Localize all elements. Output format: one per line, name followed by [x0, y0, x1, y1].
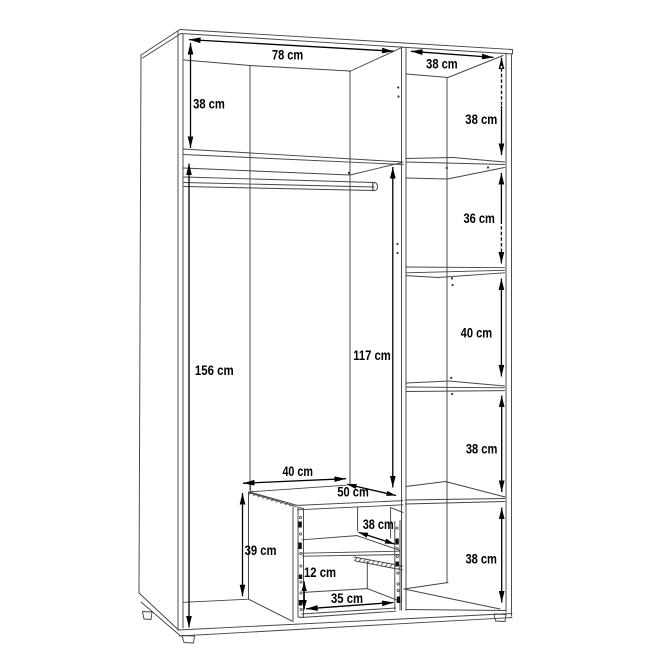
- svg-text:38 cm: 38 cm: [465, 112, 497, 127]
- svg-text:78 cm: 78 cm: [272, 47, 303, 62]
- svg-text:40 cm: 40 cm: [282, 464, 313, 479]
- svg-text:38 cm: 38 cm: [466, 442, 498, 457]
- svg-text:156 cm: 156 cm: [195, 363, 234, 378]
- svg-text:50 cm: 50 cm: [337, 485, 368, 500]
- svg-text:38 cm: 38 cm: [465, 552, 497, 567]
- svg-text:36 cm: 36 cm: [464, 211, 495, 226]
- svg-text:38 cm: 38 cm: [426, 56, 458, 71]
- svg-text:39 cm: 39 cm: [245, 543, 277, 558]
- svg-text:117 cm: 117 cm: [353, 348, 391, 363]
- svg-text:12 cm: 12 cm: [304, 565, 336, 580]
- svg-text:35 cm: 35 cm: [331, 591, 363, 606]
- svg-text:40 cm: 40 cm: [461, 326, 493, 341]
- svg-text:38 cm: 38 cm: [193, 97, 225, 112]
- svg-text:38 cm: 38 cm: [363, 517, 394, 532]
